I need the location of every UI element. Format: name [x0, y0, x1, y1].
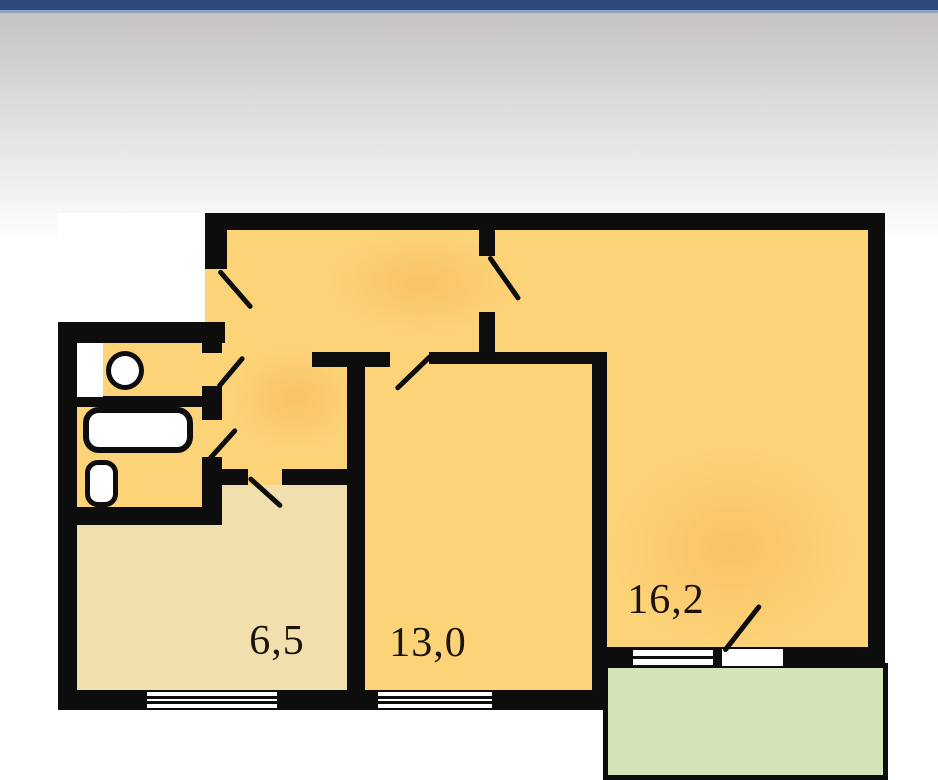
wc-sink	[77, 343, 103, 397]
hall-living-stub-top	[479, 230, 495, 256]
bath-block-right-wall-upper	[202, 343, 222, 353]
window-room-13	[378, 692, 492, 708]
room-6-5-top-wall-right	[282, 469, 365, 485]
room-6-5-floor-left	[77, 525, 222, 690]
room-6-5-top-wall-left	[217, 469, 248, 485]
room-6-5-area-label: 6,5	[227, 620, 327, 662]
balcony-door-opening	[722, 649, 783, 666]
floor-plan-page: 6,5 13,0 16,2	[0, 0, 938, 780]
washbasin	[85, 460, 118, 507]
room-13-living-divider-wall	[592, 352, 607, 710]
window-mullion	[378, 701, 492, 704]
outer-wall-right	[868, 230, 885, 668]
outside-area-top-left	[58, 213, 205, 322]
window-living-room	[633, 650, 713, 665]
floor-plan: 6,5 13,0 16,2	[0, 0, 938, 780]
bathtub	[83, 407, 193, 453]
window-mullion	[633, 656, 713, 659]
outer-wall-bottom	[58, 690, 607, 710]
room-13-area-label: 13,0	[378, 622, 478, 664]
balcony	[603, 663, 888, 780]
outer-wall-top	[205, 213, 885, 230]
hall-living-stub-bottom	[479, 312, 495, 352]
toilet	[106, 351, 144, 390]
room-13-left-wall	[347, 364, 365, 710]
bath-block-bottom-wall	[58, 507, 222, 525]
living-room-area-label: 16,2	[616, 579, 716, 621]
window-mullion	[147, 701, 277, 704]
window-room-6-5	[147, 692, 277, 708]
bath-block-top-wall	[58, 322, 225, 343]
window-mullion	[378, 696, 492, 699]
wc-bathroom-divider-wall	[77, 396, 222, 407]
hallway-left-wall	[205, 230, 227, 269]
corridor-wall-right-segment	[429, 352, 607, 364]
window-mullion	[147, 696, 277, 699]
